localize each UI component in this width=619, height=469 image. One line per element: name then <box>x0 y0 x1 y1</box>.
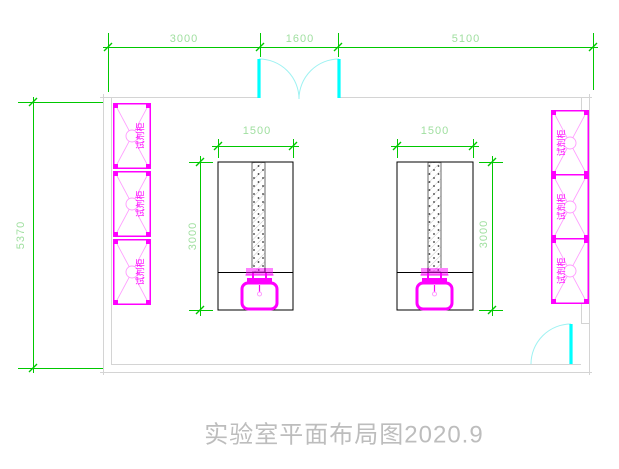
dim-left-bench-width: 1500 <box>243 125 271 137</box>
single-door <box>531 324 573 364</box>
floor-plan-canvas: 3000 1600 5100 5370 1500 3000 1500 3000 … <box>0 0 619 469</box>
dim-top-middle: 1600 <box>286 33 314 45</box>
room-walls <box>100 94 592 375</box>
left-dimension-lines <box>18 97 103 373</box>
cabinet-label: 试剂柜 <box>555 257 568 284</box>
cabinet-label: 试剂柜 <box>134 122 147 149</box>
right-bench <box>397 162 473 310</box>
dim-right-bench-width: 1500 <box>421 125 449 137</box>
cabinet-label: 试剂柜 <box>555 129 568 156</box>
dim-top-right: 5100 <box>452 33 480 45</box>
dim-top-left: 3000 <box>170 33 198 45</box>
cabinet-label: 试剂柜 <box>134 258 147 285</box>
dim-left-bench-length: 3000 <box>187 222 199 250</box>
floor-plan-drawing <box>0 0 619 469</box>
dim-right-bench-length: 3000 <box>478 220 490 248</box>
left-bench <box>218 162 293 310</box>
drawing-title: 实验室平面布局图2020.9 <box>204 415 483 450</box>
cabinet-label: 试剂柜 <box>134 190 147 217</box>
cabinet-label: 试剂柜 <box>555 193 568 220</box>
dim-wall-height: 5370 <box>15 221 27 249</box>
double-door <box>257 59 340 99</box>
